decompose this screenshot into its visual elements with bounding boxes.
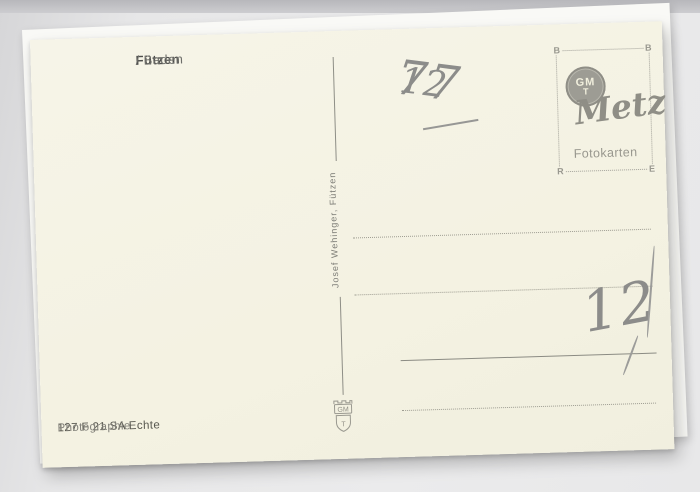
series-code-suffix: Photographie [57,420,131,434]
postal-code-underline [423,119,479,130]
address-line-4 [402,403,656,412]
fotokarten-label: Fotokarten [559,145,651,162]
gmt-crest-icon: GM T [332,399,355,434]
postal-code-suffix: 12 [397,60,450,107]
stamp-box: B B R E GM T Metz Fotokarten [556,48,654,173]
stamp-box-corner-letter: B [644,44,653,53]
pen-stroke-slash [622,335,638,375]
stamp-box-corner-letter: E [648,164,656,173]
scanned-postcard-back: Fützen / Baden 7712 B B R E GM T Metz Fo… [0,0,700,492]
divider-line-top [333,57,337,161]
divider-line-bottom [340,297,344,395]
place-region: / Baden [135,51,183,67]
crest-monogram-top: GM [337,407,349,414]
postcard: Fützen / Baden 7712 B B R E GM T Metz Fo… [30,21,674,468]
crest-monogram-bottom: T [341,421,346,428]
stamp-box-corner-letter: R [556,167,565,176]
publisher-credit: Josef Wehinger, Fützen [327,165,345,295]
stamp-box-corner-letter: B [552,46,561,55]
address-line-1 [353,229,651,239]
address-line-3 [401,353,657,362]
postal-code-handwriting: 7712 [395,50,448,97]
